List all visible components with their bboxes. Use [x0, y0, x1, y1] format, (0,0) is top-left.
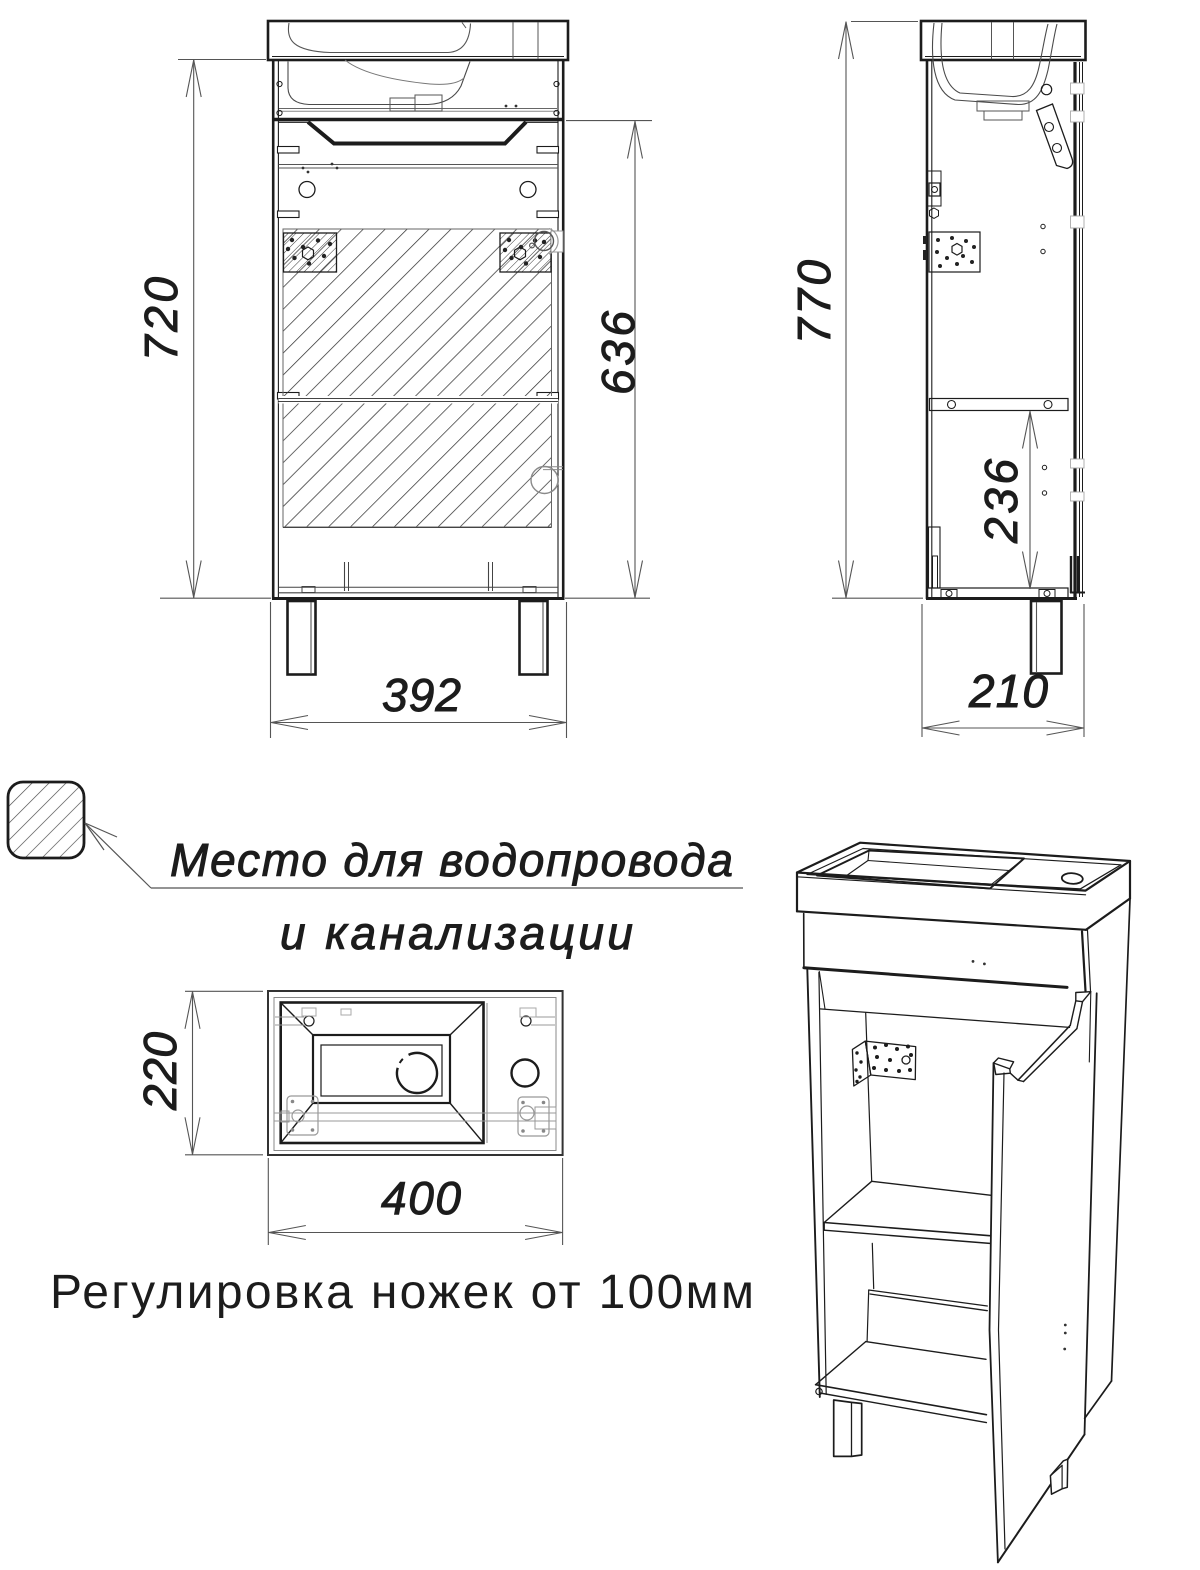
svg-text:236: 236 — [975, 459, 1027, 544]
svg-text:220: 220 — [134, 1032, 186, 1111]
svg-text:210: 210 — [968, 665, 1048, 717]
svg-text:636: 636 — [592, 311, 644, 395]
svg-text:400: 400 — [381, 1172, 461, 1224]
svg-text:и канализации: и канализации — [280, 907, 633, 959]
svg-text:392: 392 — [382, 669, 461, 721]
svg-text:770: 770 — [788, 260, 840, 344]
svg-text:Место для водопровода: Место для водопровода — [170, 834, 733, 886]
svg-text:720: 720 — [135, 277, 187, 361]
svg-text:Регулировка ножек от 100мм: Регулировка ножек от 100мм — [50, 1266, 758, 1319]
